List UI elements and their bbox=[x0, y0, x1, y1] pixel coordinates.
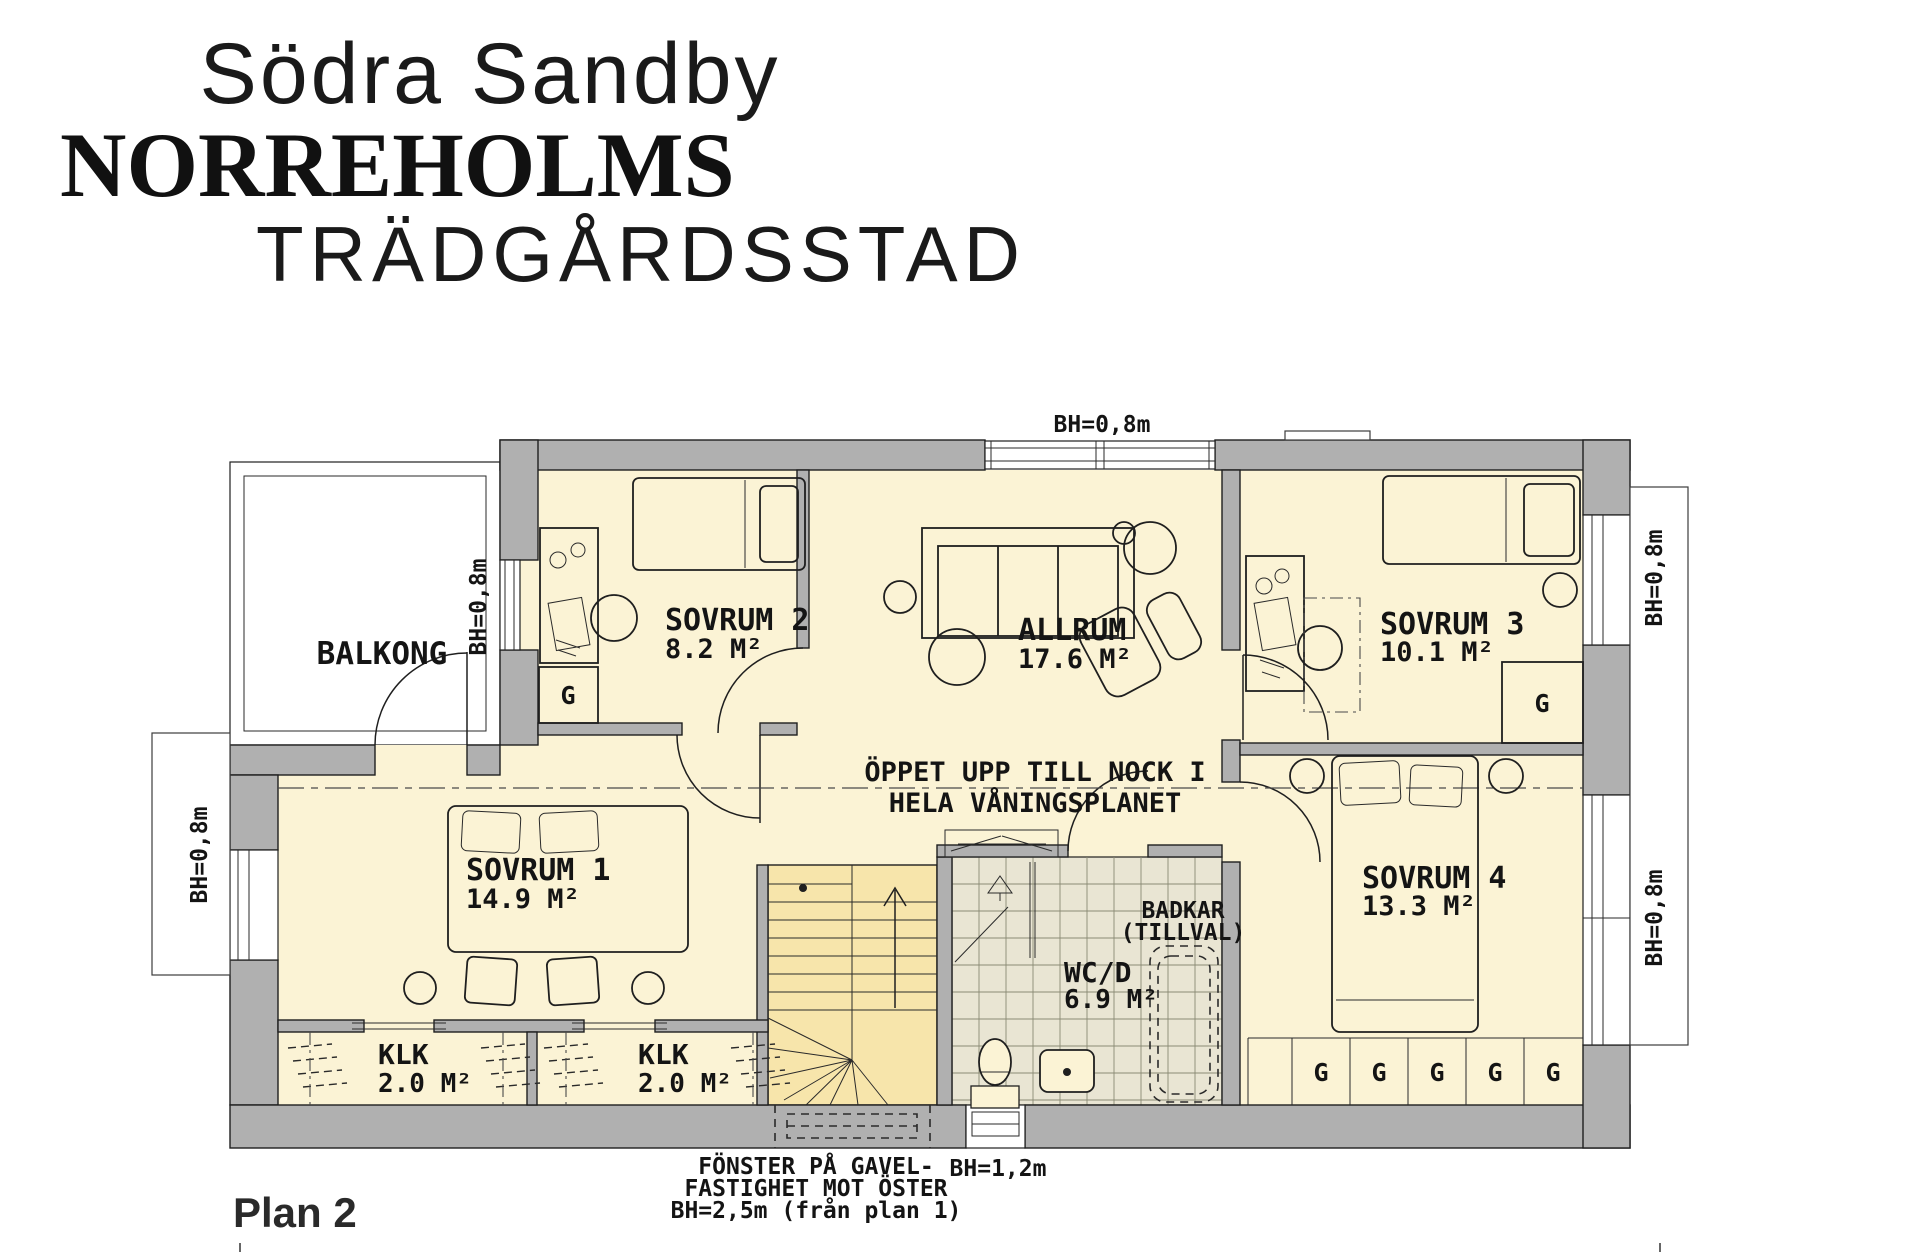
title-block: Södra Sandby NORREHOLMS TRÄDGÅRDSSTAD bbox=[60, 26, 1026, 298]
window-allrum bbox=[985, 441, 1215, 469]
bh-label-bottom: BH=1,2m bbox=[950, 1156, 1047, 1182]
stair-post bbox=[799, 884, 807, 892]
floor-plan-page: Södra Sandby NORREHOLMS TRÄDGÅRDSSTAD bbox=[0, 0, 1920, 1255]
label-sovrum1-area: 14.9 M² bbox=[466, 884, 580, 915]
label-balkong: BALKONG bbox=[317, 636, 448, 672]
window-sovrum3 bbox=[1583, 515, 1630, 645]
sink-icon bbox=[1040, 1050, 1094, 1092]
plan-label: Plan 2 bbox=[233, 1189, 357, 1236]
wardrobe-g-row-2: G bbox=[1371, 1058, 1386, 1087]
window-bottom bbox=[966, 1105, 1025, 1148]
title-line-3: TRÄDGÅRDSSTAD bbox=[256, 210, 1026, 298]
window-note-line3: BH=2,5m (från plan 1) bbox=[671, 1197, 962, 1224]
wall-bottom-right bbox=[1025, 1105, 1630, 1148]
bh-label-left: BH=0,8m bbox=[187, 807, 213, 904]
bh-label-right-top: BH=0,8m bbox=[1642, 530, 1668, 627]
window-sovrum4 bbox=[1583, 795, 1630, 1045]
wardrobe-g-sovrum3: G bbox=[1534, 689, 1549, 718]
note-badkar-line2: (TILLVAL) bbox=[1121, 920, 1246, 946]
wall-wc-north-b bbox=[1148, 845, 1222, 857]
label-allrum-area: 17.6 M² bbox=[1018, 644, 1132, 675]
wall-top-left bbox=[500, 440, 985, 470]
window-left bbox=[230, 850, 278, 960]
wall-top-notch bbox=[1285, 431, 1370, 440]
wardrobe-g-row-4: G bbox=[1487, 1058, 1502, 1087]
wardrobe-g-row-3: G bbox=[1429, 1058, 1444, 1087]
title-line-1: Södra Sandby bbox=[199, 26, 780, 122]
wall-balcony-rear-right bbox=[467, 745, 500, 775]
wall-top-right bbox=[1215, 440, 1630, 470]
wardrobe-g-row-5: G bbox=[1545, 1058, 1560, 1087]
crop-marks bbox=[240, 1243, 1660, 1252]
wall-hall-north-b bbox=[760, 723, 797, 735]
wall-allrum-sovrum3 bbox=[1222, 470, 1240, 650]
wall-wc-sovrum4 bbox=[1222, 862, 1240, 1105]
note-open-line1: ÖPPET UPP TILL NOCK I bbox=[864, 755, 1205, 788]
wall-left-lower bbox=[230, 960, 278, 1105]
wall-bottom-left bbox=[230, 1105, 966, 1148]
bh-label-right-bottom: BH=0,8m bbox=[1642, 870, 1668, 967]
label-sovrum2-area: 8.2 M² bbox=[665, 634, 763, 665]
wall-right-top bbox=[1583, 440, 1630, 515]
window-pier bbox=[500, 560, 520, 650]
label-allrum-name: ALLRUM bbox=[1018, 613, 1126, 648]
label-klk1-area: 2.0 M² bbox=[378, 1069, 472, 1099]
wall-left-upper bbox=[230, 775, 278, 850]
wall-sovrum3-sovrum4 bbox=[1240, 743, 1583, 755]
wardrobe-g-sovrum2: G bbox=[560, 681, 575, 710]
label-klk1-name: KLK bbox=[378, 1038, 429, 1071]
balcony-outline bbox=[230, 462, 500, 745]
balcony-threshold bbox=[375, 745, 467, 775]
label-sovrum1-name: SOVRUM 1 bbox=[466, 853, 611, 888]
bh-label-pier: BH=0,8m bbox=[466, 559, 492, 656]
wall-right-bottom bbox=[1583, 1045, 1630, 1148]
wall-klk-divider bbox=[527, 1032, 537, 1105]
wall-east-stub bbox=[1222, 740, 1240, 782]
wall-right-middle bbox=[1583, 645, 1630, 795]
title-line-2: NORREHOLMS bbox=[60, 114, 735, 216]
balcony bbox=[230, 462, 500, 775]
label-sovrum4-area: 13.3 M² bbox=[1362, 891, 1476, 922]
wall-klk-north-a bbox=[278, 1020, 364, 1032]
bh-label-top: BH=0,8m bbox=[1054, 412, 1151, 438]
wall-klk-north-b bbox=[434, 1020, 584, 1032]
floor-plan-drawing: Södra Sandby NORREHOLMS TRÄDGÅRDSSTAD bbox=[0, 0, 1920, 1255]
label-sovrum2-name: SOVRUM 2 bbox=[665, 603, 810, 638]
label-wcd-area: 6.9 M² bbox=[1064, 985, 1158, 1015]
wardrobe-g-row-1: G bbox=[1313, 1058, 1328, 1087]
wall-klk-north-c bbox=[655, 1020, 768, 1032]
wall-balcony-pier-bottom bbox=[500, 650, 538, 745]
wall-wc-north-a bbox=[937, 845, 1068, 857]
wall-balcony-rear-left bbox=[230, 745, 375, 775]
note-open-line2: HELA VÅNINGSPLANET bbox=[889, 787, 1182, 819]
wall-hall-north-a bbox=[538, 723, 682, 735]
wall-balcony-pier-top bbox=[500, 440, 538, 560]
label-klk2-name: KLK bbox=[638, 1038, 689, 1071]
label-sovrum3-area: 10.1 M² bbox=[1380, 637, 1494, 668]
wall-stairs-west bbox=[757, 865, 768, 1105]
wall-stairs-wc bbox=[937, 857, 952, 1105]
label-klk2-area: 2.0 M² bbox=[638, 1069, 732, 1099]
